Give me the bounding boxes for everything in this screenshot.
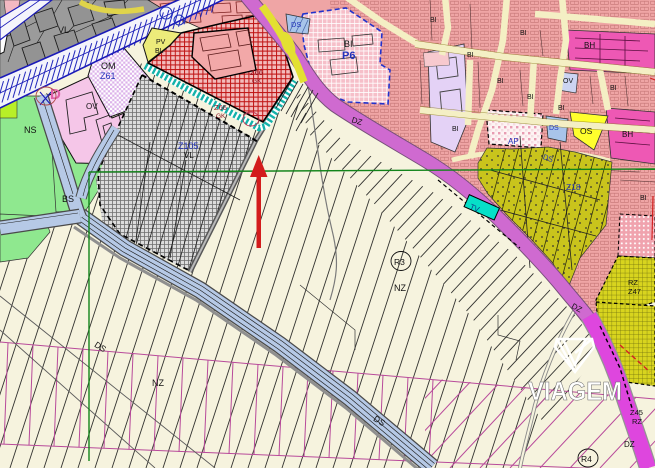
svg-text:Z47: Z47 (628, 287, 641, 296)
svg-text:Z45: Z45 (630, 408, 643, 417)
svg-text:R4: R4 (581, 454, 592, 464)
svg-text:DS: DS (291, 20, 301, 29)
svg-text:Z61: Z61 (100, 71, 116, 81)
svg-text:DS: DS (549, 125, 559, 132)
svg-text:OV: OV (563, 78, 573, 85)
svg-text:BI: BI (610, 85, 617, 92)
svg-text:BI: BI (467, 52, 474, 59)
svg-text:Z66: Z66 (214, 103, 227, 112)
svg-text:RZ: RZ (632, 417, 642, 426)
svg-text:NZ: NZ (394, 283, 406, 293)
svg-text:BI: BI (640, 195, 647, 202)
svg-text:BI: BI (430, 17, 437, 24)
svg-text:OS: OS (580, 126, 593, 136)
svg-text:BI: BI (344, 39, 353, 49)
svg-text:BI: BI (527, 94, 534, 101)
svg-text:OM: OM (101, 61, 116, 71)
svg-text:BI: BI (497, 78, 504, 85)
svg-text:VL: VL (184, 151, 194, 160)
svg-text:AP: AP (508, 137, 519, 146)
svg-text:RZ: RZ (628, 278, 638, 287)
svg-text:BH: BH (622, 130, 633, 139)
svg-text:Z105: Z105 (178, 141, 199, 151)
svg-text:OV: OV (86, 102, 98, 111)
svg-text:BL: BL (155, 48, 164, 55)
svg-text:VL: VL (58, 25, 69, 35)
svg-text:BH: BH (584, 41, 595, 50)
svg-text:DZ: DZ (624, 440, 635, 449)
svg-text:NZ: NZ (152, 378, 164, 388)
svg-text:NS: NS (24, 125, 37, 135)
svg-text:R3: R3 (394, 257, 405, 267)
svg-text:VIAGEM: VIAGEM (528, 376, 622, 406)
svg-text:Z66: Z66 (250, 68, 263, 77)
svg-text:BI: BI (520, 30, 527, 37)
svg-text:GK: GK (216, 113, 226, 120)
svg-text:P6: P6 (342, 50, 355, 62)
svg-text:PV: PV (156, 39, 166, 46)
svg-text:GK: GK (252, 78, 262, 85)
svg-text:BS: BS (62, 194, 74, 204)
svg-text:BI: BI (452, 126, 459, 133)
svg-text:BI: BI (558, 105, 565, 112)
svg-text:Z18: Z18 (566, 182, 581, 192)
